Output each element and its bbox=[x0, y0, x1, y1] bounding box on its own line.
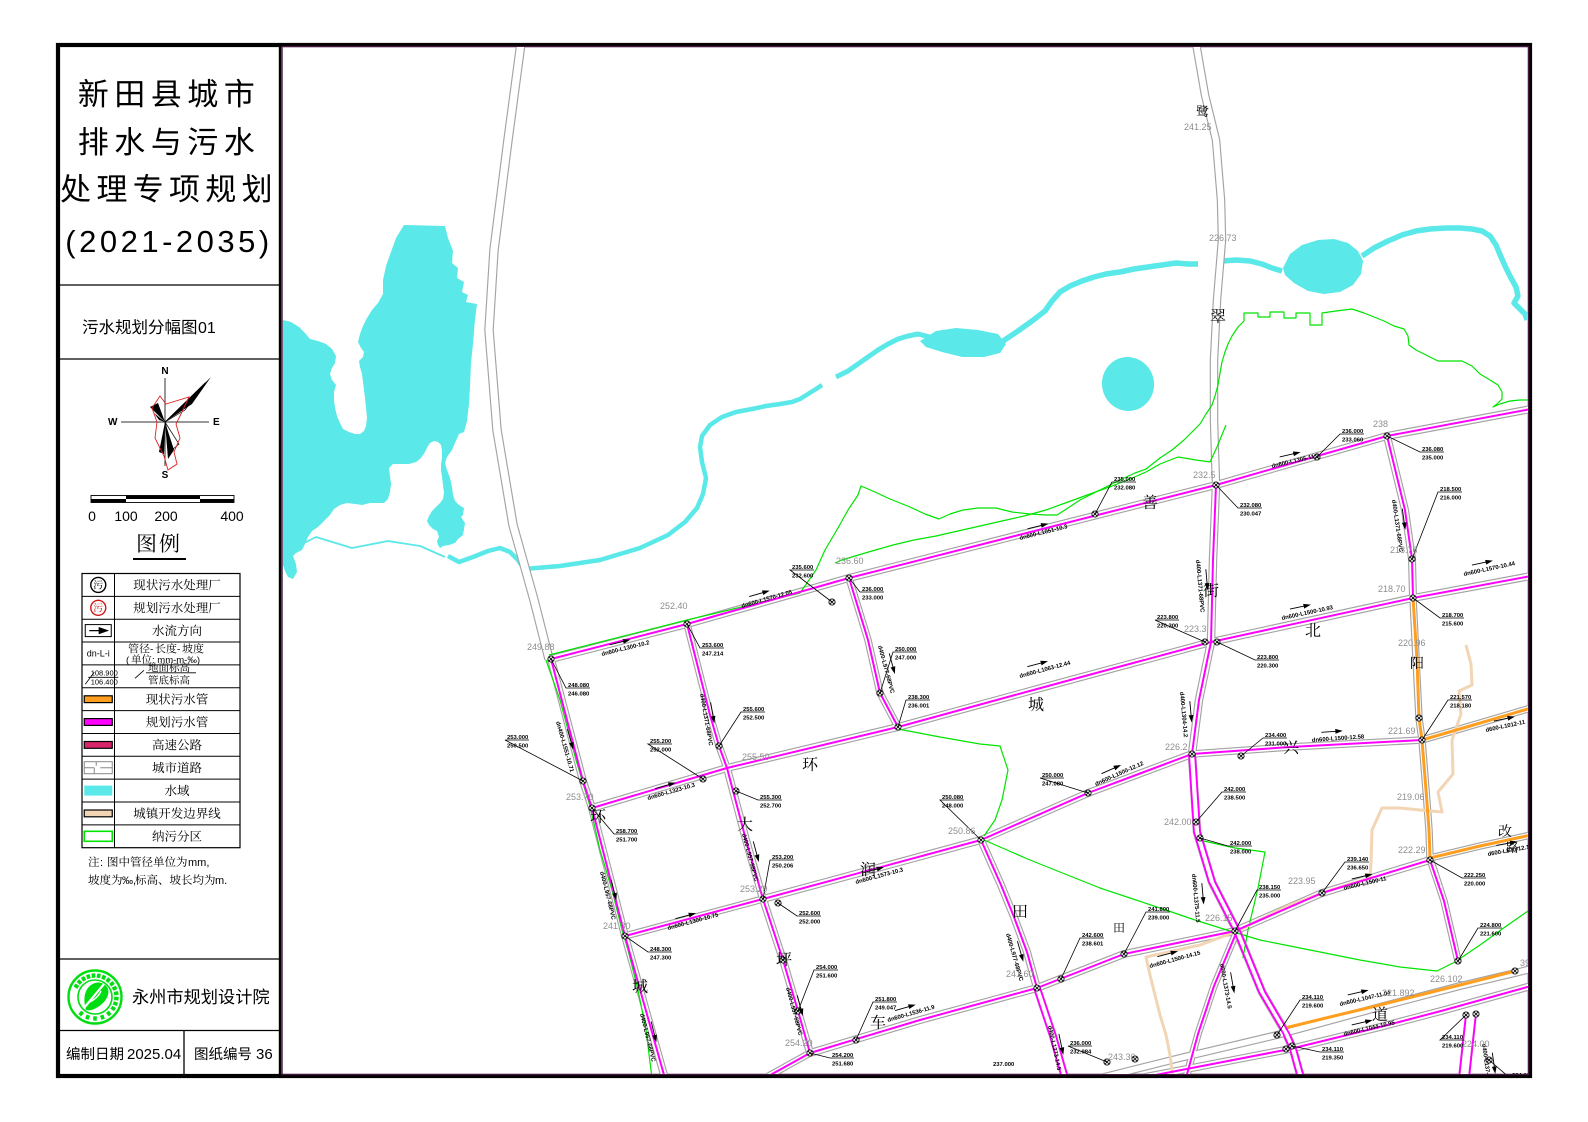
svg-text:249.047: 249.047 bbox=[875, 1006, 897, 1012]
svg-text:249.88: 249.88 bbox=[527, 642, 555, 652]
svg-text:235.000: 235.000 bbox=[1114, 477, 1136, 483]
svg-text:216.000: 216.000 bbox=[1440, 496, 1462, 502]
svg-text:248.080: 248.080 bbox=[568, 683, 590, 689]
svg-text:223.3: 223.3 bbox=[1184, 624, 1207, 634]
svg-text:233.060: 233.060 bbox=[1342, 438, 1364, 444]
svg-text:236.000: 236.000 bbox=[1070, 1041, 1092, 1047]
svg-text:250.000: 250.000 bbox=[1042, 773, 1064, 779]
svg-text:242.000: 242.000 bbox=[1230, 841, 1252, 847]
svg-text:254.000: 254.000 bbox=[816, 965, 838, 971]
svg-text::: : bbox=[100, 857, 103, 869]
svg-text:232.080: 232.080 bbox=[1240, 503, 1262, 509]
svg-text:200: 200 bbox=[154, 508, 178, 524]
svg-text:231.000: 231.000 bbox=[1265, 742, 1287, 748]
svg-text:252.500: 252.500 bbox=[743, 716, 765, 722]
svg-text:238.000: 238.000 bbox=[1230, 850, 1252, 856]
svg-text:238.300: 238.300 bbox=[908, 695, 930, 701]
svg-text:234.110: 234.110 bbox=[1302, 995, 1324, 1001]
svg-text:232.600: 232.600 bbox=[792, 574, 814, 580]
svg-text:238: 238 bbox=[1373, 419, 1388, 429]
svg-text:237.000: 237.000 bbox=[993, 1062, 1015, 1068]
svg-text:224.00: 224.00 bbox=[1462, 1039, 1490, 1049]
svg-text:251.680: 251.680 bbox=[832, 1062, 854, 1068]
svg-text:226.73: 226.73 bbox=[1209, 233, 1237, 243]
svg-text:100: 100 bbox=[114, 508, 138, 524]
svg-text:220.300: 220.300 bbox=[1257, 664, 1279, 670]
svg-text:252.000: 252.000 bbox=[799, 920, 821, 926]
svg-text:247.300: 247.300 bbox=[650, 956, 672, 962]
svg-text:243.30: 243.30 bbox=[1108, 1052, 1136, 1062]
svg-text:226.2: 226.2 bbox=[1165, 742, 1188, 752]
svg-text:241.25: 241.25 bbox=[1184, 122, 1212, 132]
svg-text:255.200: 255.200 bbox=[650, 739, 672, 745]
svg-text:219.350: 219.350 bbox=[1322, 1056, 1344, 1062]
svg-text:254.200: 254.200 bbox=[832, 1053, 854, 1059]
svg-text:239.000: 239.000 bbox=[1148, 916, 1170, 922]
svg-text:250.86: 250.86 bbox=[948, 826, 976, 836]
svg-text:219.600: 219.600 bbox=[1442, 1044, 1464, 1050]
svg-text:251.700: 251.700 bbox=[616, 838, 638, 844]
svg-text:247.080: 247.080 bbox=[1042, 782, 1064, 788]
svg-text:238.500: 238.500 bbox=[1224, 796, 1246, 802]
svg-text:0: 0 bbox=[88, 508, 96, 524]
svg-text:255.300: 255.300 bbox=[760, 795, 782, 801]
svg-text:221.570: 221.570 bbox=[1450, 695, 1472, 701]
svg-text:247.000: 247.000 bbox=[895, 656, 917, 662]
svg-text:S: S bbox=[162, 470, 169, 481]
svg-text:218.76: 218.76 bbox=[1390, 545, 1418, 555]
svg-text:218.700: 218.700 bbox=[1442, 613, 1464, 619]
svg-text:250.500: 250.500 bbox=[507, 744, 529, 750]
svg-text:236.60: 236.60 bbox=[836, 556, 864, 566]
svg-text:252.700: 252.700 bbox=[760, 804, 782, 810]
svg-text:251.600: 251.600 bbox=[816, 974, 838, 980]
svg-text:242.00: 242.00 bbox=[1164, 817, 1192, 827]
svg-text:246.080: 246.080 bbox=[568, 692, 590, 698]
svg-text:: mm-m-‰): : mm-m-‰) bbox=[152, 655, 200, 666]
svg-text:242.600: 242.600 bbox=[1082, 933, 1104, 939]
svg-text:253.70: 253.70 bbox=[566, 792, 594, 802]
svg-text:252.600: 252.600 bbox=[799, 911, 821, 917]
svg-text:230.047: 230.047 bbox=[1240, 512, 1262, 518]
svg-text:2025.04: 2025.04 bbox=[127, 1046, 181, 1063]
svg-text:241.60: 241.60 bbox=[1006, 969, 1034, 979]
svg-text:106.400: 106.400 bbox=[91, 677, 118, 686]
svg-text:234.110: 234.110 bbox=[1442, 1035, 1464, 1041]
svg-text:232.080: 232.080 bbox=[1114, 486, 1136, 492]
svg-text:W: W bbox=[108, 417, 118, 428]
svg-text:400: 400 bbox=[220, 508, 244, 524]
svg-text:mm,: mm, bbox=[188, 857, 209, 869]
svg-text:(2021-2035): (2021-2035) bbox=[65, 224, 272, 259]
svg-text:222.250: 222.250 bbox=[1464, 873, 1486, 879]
svg-text:253.29: 253.29 bbox=[740, 884, 768, 894]
svg-text:223.800: 223.800 bbox=[1157, 615, 1179, 621]
svg-text:232.984: 232.984 bbox=[1070, 1050, 1092, 1056]
svg-text:236.000: 236.000 bbox=[1342, 429, 1364, 435]
svg-text:232.5: 232.5 bbox=[1193, 470, 1216, 480]
svg-text:dn-L-i: dn-L-i bbox=[87, 649, 110, 659]
svg-text:218.180: 218.180 bbox=[1450, 704, 1472, 710]
svg-text:254.20: 254.20 bbox=[785, 1038, 813, 1048]
svg-text:235.600: 235.600 bbox=[792, 565, 814, 571]
svg-text:239.140: 239.140 bbox=[1347, 857, 1369, 863]
svg-text:218.70: 218.70 bbox=[1378, 584, 1406, 594]
svg-text:-: - bbox=[177, 645, 180, 656]
svg-text:108.900: 108.900 bbox=[91, 668, 118, 677]
svg-text:251.800: 251.800 bbox=[875, 997, 897, 1003]
svg-text:255.50: 255.50 bbox=[742, 752, 770, 762]
svg-text:248.000: 248.000 bbox=[942, 804, 964, 810]
svg-text:238.150: 238.150 bbox=[1259, 885, 1281, 891]
svg-text:248.300: 248.300 bbox=[650, 947, 672, 953]
svg-text:253.600: 253.600 bbox=[702, 643, 724, 649]
svg-text:255.600: 255.600 bbox=[743, 707, 765, 713]
svg-text:224.800: 224.800 bbox=[1480, 923, 1502, 929]
svg-text:238.601: 238.601 bbox=[1082, 942, 1104, 948]
svg-text:221.69: 221.69 bbox=[1388, 726, 1416, 736]
svg-text:220.000: 220.000 bbox=[1464, 882, 1486, 888]
svg-text:223.800: 223.800 bbox=[1257, 655, 1279, 661]
svg-text:236.080: 236.080 bbox=[1422, 447, 1444, 453]
svg-text:253.000: 253.000 bbox=[507, 735, 529, 741]
svg-text:220.300: 220.300 bbox=[1157, 624, 1179, 630]
svg-text:236.650: 236.650 bbox=[1347, 866, 1369, 872]
svg-text:241.800: 241.800 bbox=[1148, 907, 1170, 913]
svg-text:221.892: 221.892 bbox=[1382, 988, 1415, 998]
svg-text:36: 36 bbox=[256, 1046, 273, 1063]
svg-text:226.102: 226.102 bbox=[1430, 974, 1463, 984]
svg-text:221.600: 221.600 bbox=[1480, 932, 1502, 938]
svg-text:219.06: 219.06 bbox=[1397, 792, 1425, 802]
svg-text:218.500: 218.500 bbox=[1440, 487, 1462, 493]
svg-text:235.000: 235.000 bbox=[1422, 456, 1444, 462]
svg-text:219.600: 219.600 bbox=[1302, 1004, 1324, 1010]
svg-text:250.206: 250.206 bbox=[772, 864, 794, 870]
svg-text:250.080: 250.080 bbox=[942, 795, 964, 801]
svg-text:252.40: 252.40 bbox=[660, 601, 688, 611]
svg-text:242.000: 242.000 bbox=[1224, 787, 1246, 793]
svg-text:247.214: 247.214 bbox=[702, 652, 724, 658]
svg-text:241.30: 241.30 bbox=[603, 921, 631, 931]
svg-text:235.000: 235.000 bbox=[1259, 894, 1281, 900]
svg-text:236.000: 236.000 bbox=[862, 587, 884, 593]
svg-text:253.200: 253.200 bbox=[772, 855, 794, 861]
svg-text:215.600: 215.600 bbox=[1442, 622, 1464, 628]
svg-text:233.000: 233.000 bbox=[862, 596, 884, 602]
svg-text:234.400: 234.400 bbox=[1265, 733, 1287, 739]
svg-text:E: E bbox=[213, 417, 220, 428]
svg-text:234.110: 234.110 bbox=[1322, 1047, 1344, 1053]
svg-text:250.000: 250.000 bbox=[895, 647, 917, 653]
svg-text:-: - bbox=[150, 645, 153, 656]
svg-text:236.001: 236.001 bbox=[908, 704, 930, 710]
svg-text:‰,: ‰, bbox=[122, 875, 136, 887]
svg-text:m.: m. bbox=[215, 875, 227, 887]
svg-text:220.96: 220.96 bbox=[1398, 638, 1426, 648]
svg-text:252.000: 252.000 bbox=[650, 748, 672, 754]
svg-text:222.29: 222.29 bbox=[1398, 845, 1426, 855]
svg-text:223.95: 223.95 bbox=[1288, 876, 1316, 886]
svg-text:01: 01 bbox=[198, 320, 216, 337]
svg-text:226.15: 226.15 bbox=[1205, 913, 1233, 923]
svg-text:258.700: 258.700 bbox=[616, 829, 638, 835]
svg-text:N: N bbox=[161, 366, 168, 377]
